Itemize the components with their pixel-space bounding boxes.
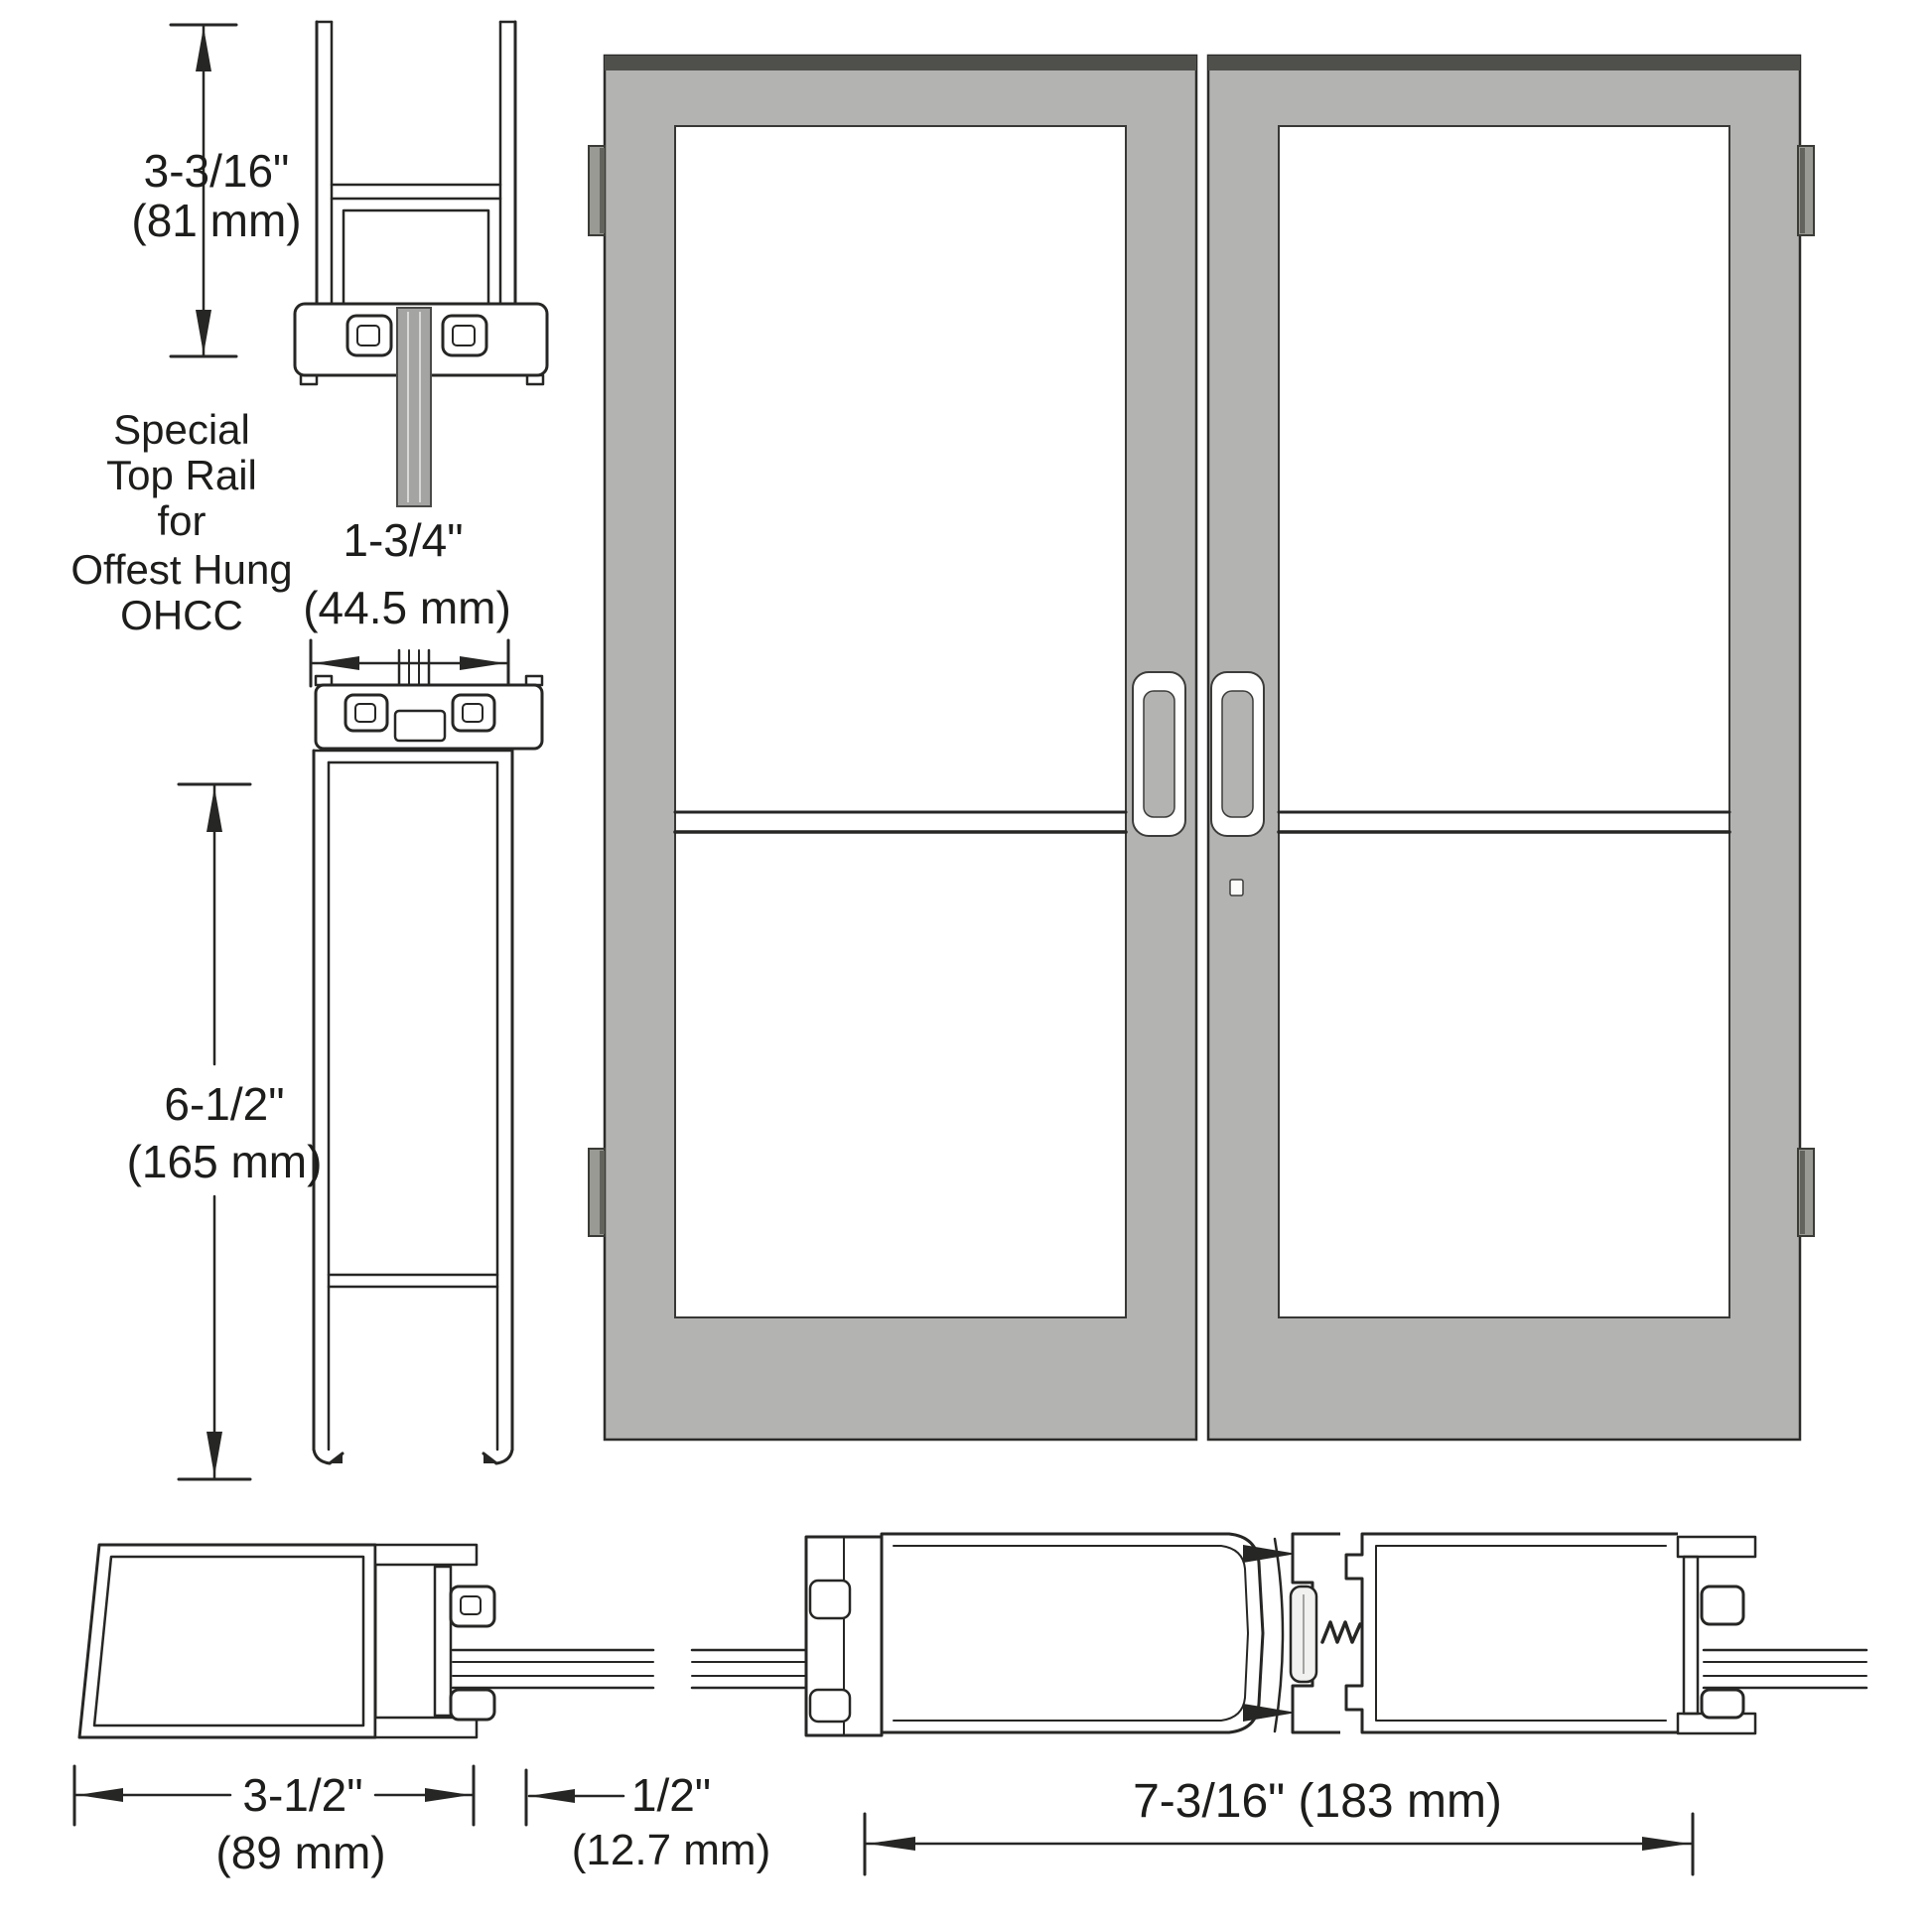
glass-strip xyxy=(397,308,431,506)
meeting-stiles-profile-section xyxy=(692,1534,1866,1735)
arrow-right-icon xyxy=(1642,1837,1690,1851)
arrow-down-icon xyxy=(207,1432,222,1476)
caption-line: Special xyxy=(113,406,250,453)
astragal-arc xyxy=(1275,1539,1283,1731)
arrow-right-icon xyxy=(425,1788,471,1802)
right-door-glass xyxy=(1279,126,1729,1317)
arrow-left-icon xyxy=(314,656,359,670)
left-door-pull-handle xyxy=(1133,672,1185,836)
top-rail-profile-section xyxy=(295,22,547,506)
gasket-clip xyxy=(347,316,391,355)
gasket-clip xyxy=(810,1690,850,1722)
gap-dimension: 1/2" (12.7 mm) xyxy=(526,1769,770,1874)
door-drawing-svg: 3-3/16" (81 mm) Special Top Ra xyxy=(0,0,1932,1932)
arrow-up-icon xyxy=(196,27,211,71)
right-door-pull-handle xyxy=(1211,672,1264,836)
thickness-metric: (44.5 mm) xyxy=(303,582,511,633)
left-door-glass xyxy=(675,126,1126,1317)
top-rail-height-inches: 3-3/16" xyxy=(144,145,290,197)
arrow-up-icon xyxy=(207,787,222,832)
gap-inches: 1/2" xyxy=(631,1769,711,1821)
gasket-clip xyxy=(453,695,494,731)
caption-line: OHCC xyxy=(120,592,243,638)
gasket-clip xyxy=(345,695,387,731)
door-top-edge xyxy=(1208,56,1800,70)
gap-metric: (12.7 mm) xyxy=(572,1826,770,1874)
gasket-clip xyxy=(1702,1587,1743,1624)
weatherstrip-dart-icon xyxy=(1243,1545,1297,1563)
technical-drawing-page: 3-3/16" (81 mm) Special Top Ra xyxy=(0,0,1932,1932)
weatherstrip-dart-icon xyxy=(1243,1704,1297,1722)
bottom-rail-profile-section xyxy=(314,650,542,1463)
hinge-stile-profile-section xyxy=(79,1545,653,1737)
right-door xyxy=(1208,56,1814,1440)
gasket-clip xyxy=(443,316,486,355)
gasket-clip xyxy=(451,1690,494,1720)
lock-cylinder-icon xyxy=(1230,880,1243,896)
hinge-icon xyxy=(589,1149,605,1236)
glass-lines xyxy=(453,1650,653,1688)
arrow-down-icon xyxy=(196,310,211,354)
door-top-edge xyxy=(605,56,1196,70)
arrow-right-icon xyxy=(460,656,505,670)
top-rail-height-metric: (81 mm) xyxy=(131,195,301,246)
gasket-clip xyxy=(451,1587,494,1626)
meeting-stiles-width-dimension: 7-3/16" (183 mm) xyxy=(865,1775,1693,1874)
caption-line: Top Rail xyxy=(106,452,257,498)
bottom-rail-inches: 6-1/2" xyxy=(164,1078,284,1130)
door-thickness-dimension: 1-3/4" (44.5 mm) xyxy=(303,514,511,686)
pair-width-label: 7-3/16" (183 mm) xyxy=(1133,1775,1502,1828)
hinge-icon xyxy=(1798,146,1814,235)
caption-line: Offest Hung xyxy=(70,546,292,593)
arrow-left-icon xyxy=(77,1788,123,1802)
stile-width-metric: (89 mm) xyxy=(215,1827,385,1878)
top-rail-height-dimension: 3-3/16" (81 mm) xyxy=(131,25,301,356)
special-top-rail-caption: Special Top Rail for Offest Hung OHCC xyxy=(70,406,292,638)
bottom-rail-metric: (165 mm) xyxy=(127,1136,323,1187)
gasket-clip xyxy=(810,1581,850,1618)
hinge-icon xyxy=(589,146,605,235)
bottom-rail-height-dimension: 6-1/2" (165 mm) xyxy=(127,784,323,1479)
arrow-left-icon xyxy=(868,1837,915,1851)
double-door-elevation xyxy=(589,56,1814,1440)
thickness-inches: 1-3/4" xyxy=(343,514,463,566)
hinge-stile-width-dimension: 3-1/2" (89 mm) xyxy=(74,1766,474,1878)
caption-line: for xyxy=(157,497,206,544)
stile-width-inches: 3-1/2" xyxy=(242,1769,362,1821)
glass-lines xyxy=(1704,1650,1866,1688)
gasket-clip xyxy=(1702,1690,1743,1718)
hinge-icon xyxy=(1798,1149,1814,1236)
left-door xyxy=(589,56,1196,1440)
